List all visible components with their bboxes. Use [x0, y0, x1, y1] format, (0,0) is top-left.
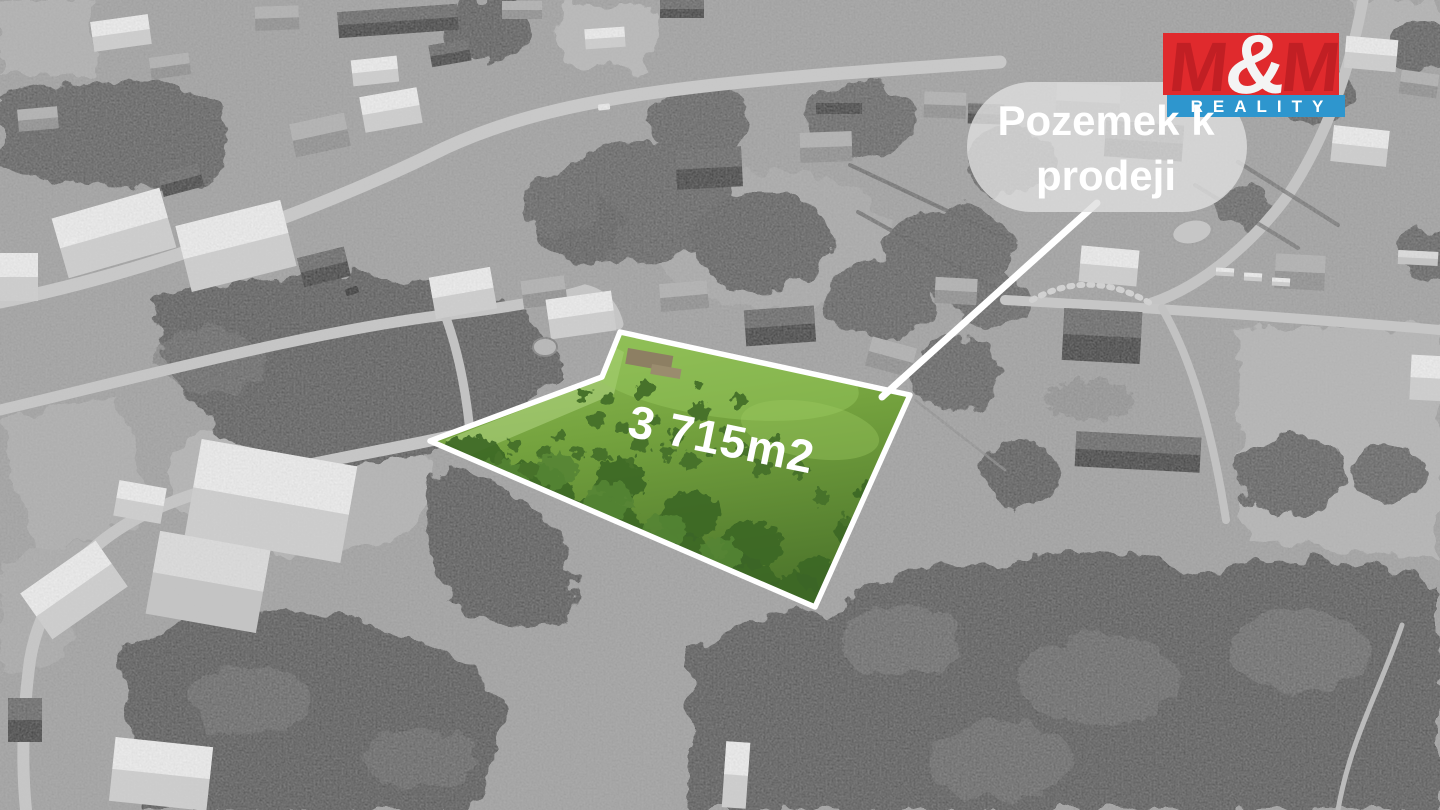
callout-line-1: Pozemek k [997, 97, 1215, 144]
real-estate-listing-photo: M M & REALITY Pozemek k prodeji 3 715m2 [0, 0, 1440, 810]
aerial-photo: M M & REALITY Pozemek k prodeji 3 715m2 [0, 0, 1440, 810]
callout-line-2: prodeji [1036, 152, 1176, 199]
